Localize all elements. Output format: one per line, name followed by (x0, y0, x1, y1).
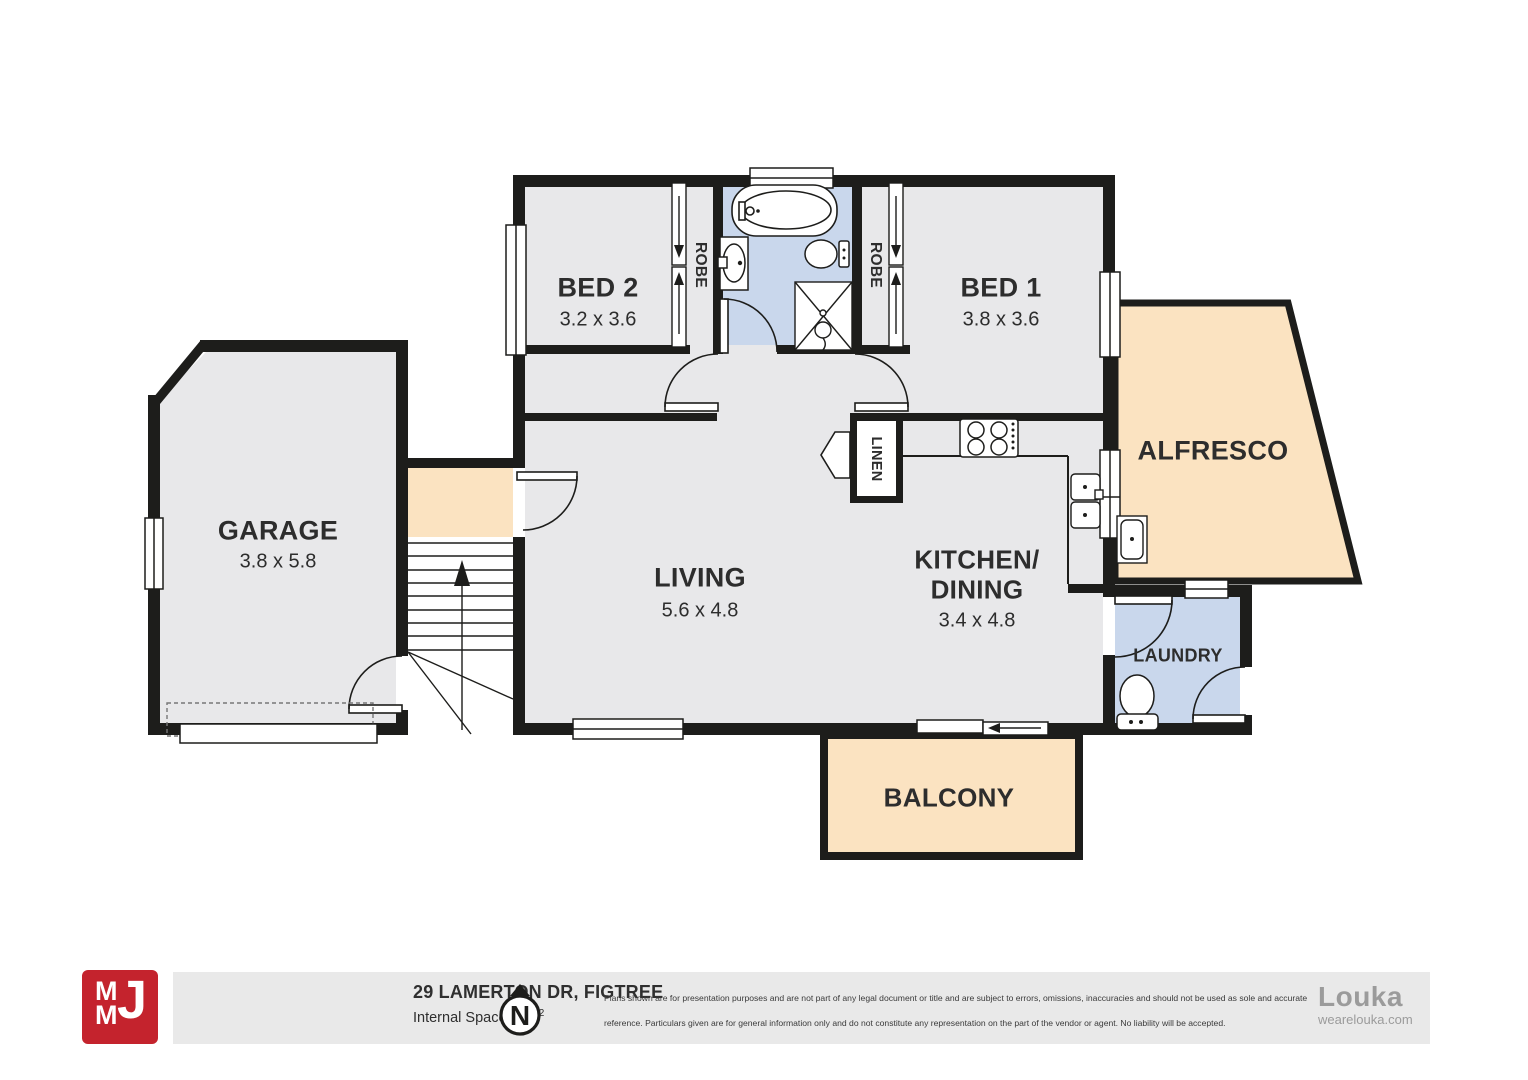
garage-dims: 3.8 x 5.8 (240, 551, 317, 574)
louka-url: wearelouka.com (1318, 1012, 1413, 1027)
disclaimer: Plans shown are for presentation purpose… (604, 986, 1314, 1035)
laundry-doorway-gap (1103, 597, 1115, 655)
kitchen-label-line2: DINING (931, 575, 1024, 606)
bed1-dims: 3.8 x 3.6 (963, 309, 1040, 332)
vanity-sink-icon (718, 237, 748, 290)
bed1-window-icon (1100, 272, 1120, 357)
balcony-sliding-door-icon (917, 720, 1048, 735)
laundry-label: LAUNDRY (1133, 646, 1222, 667)
louka-logo: Louka wearelouka.com (1318, 984, 1413, 1027)
alfresco-tub-icon (1117, 516, 1147, 563)
cooktop-icon (960, 419, 1018, 457)
bed1-label: BED 1 (960, 273, 1041, 304)
mmj-logo: M M J (82, 970, 158, 1044)
kitchen-label-line1: KITCHEN/ (914, 545, 1039, 576)
floor-plan-drawing (0, 0, 1528, 960)
north-compass-icon: N (497, 983, 543, 1037)
bathroom-toilet-icon (805, 240, 849, 268)
garage-window-icon (145, 518, 163, 589)
shower-icon (795, 282, 852, 351)
kitchen-dims: 3.4 x 4.8 (939, 610, 1016, 633)
mmj-logo-mm: M M (95, 979, 118, 1027)
floor-plan-page: GARAGE 3.8 x 5.8 BED 2 3.2 x 3.6 BED 1 3… (0, 0, 1528, 1080)
floor-fills (160, 187, 1358, 856)
bed2-window-icon (506, 225, 526, 355)
disclaimer-line1: Plans shown are for presentation purpose… (604, 986, 1314, 1011)
living-window-icon (573, 719, 683, 739)
svg-text:N: N (510, 1000, 530, 1031)
louka-name: Louka (1318, 984, 1413, 1010)
bed2-dims: 3.2 x 3.6 (560, 309, 637, 332)
living-label: LIVING (654, 563, 746, 594)
robe-left-label: ROBE (691, 242, 709, 288)
laundry-window-icon (1185, 580, 1228, 598)
alfresco-label: ALFRESCO (1138, 436, 1289, 467)
living-dims: 5.6 x 4.8 (662, 600, 739, 623)
bed2-label: BED 2 (557, 273, 638, 304)
balcony-label: BALCONY (884, 783, 1015, 814)
entry-landing-floor (408, 468, 513, 537)
garage-label: GARAGE (218, 516, 338, 547)
bath-icon (732, 185, 837, 236)
robe-right-label: ROBE (866, 242, 884, 288)
linen-label: LINEN (868, 437, 884, 482)
disclaimer-line2: reference. Particulars given are for gen… (604, 1011, 1314, 1036)
mmj-logo-j: J (117, 970, 147, 1030)
